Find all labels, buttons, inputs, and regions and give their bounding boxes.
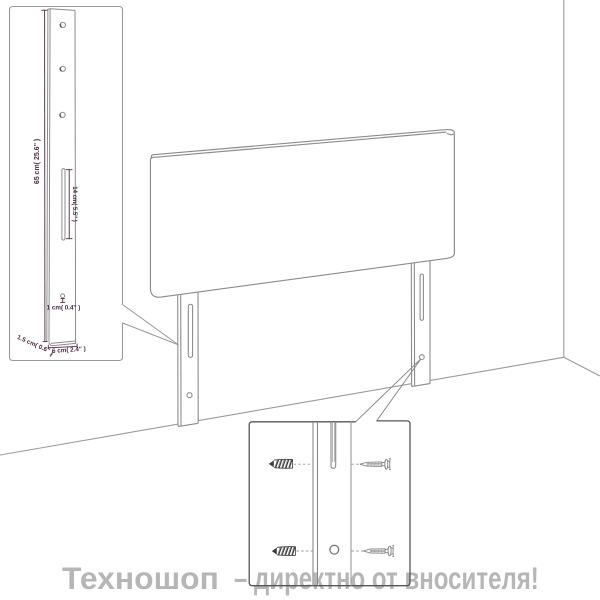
svg-text:14 cm( 5.5'' ): 14 cm( 5.5'' ) bbox=[71, 186, 77, 222]
svg-text:6 cm( 2.4'' ): 6 cm( 2.4'' ) bbox=[52, 346, 86, 355]
svg-text:1 cm( 0.4'' ): 1 cm( 0.4'' ) bbox=[47, 305, 81, 312]
svg-text:65 cm( 25.6'' ): 65 cm( 25.6'' ) bbox=[34, 139, 41, 184]
